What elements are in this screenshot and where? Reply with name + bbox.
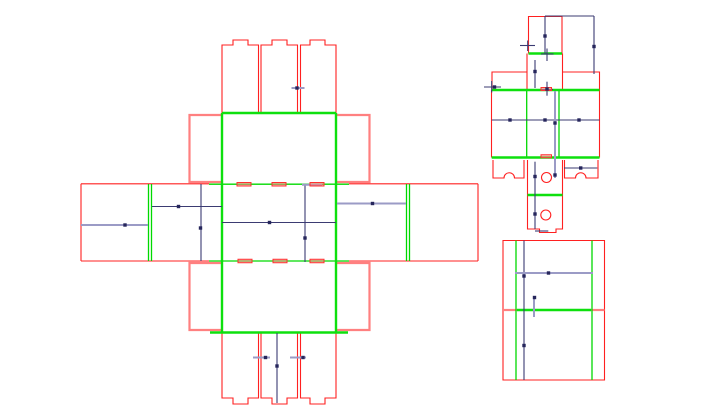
- small-cross-dieline-dimension-marker: [533, 212, 536, 215]
- small-cross-dieline-dimension-marker: [493, 85, 496, 88]
- small-cross-dieline-dimension-marker: [543, 34, 546, 37]
- small-cross-dieline-dimension-marker: [553, 121, 556, 124]
- main-cross-dieline-cutT-path[interactable]: [336, 263, 370, 330]
- main-cross-dieline-cutT-path[interactable]: [190, 115, 223, 182]
- main-cross-dieline-cut-path[interactable]: [301, 333, 337, 404]
- main-cross-dieline-cutT-path[interactable]: [190, 263, 223, 330]
- cad-svg: [0, 0, 720, 416]
- bottom-panel-dieline-dimension-marker: [522, 344, 525, 347]
- main-cross-dieline-cutT-path[interactable]: [336, 115, 370, 182]
- main-cross-dieline-dimension-marker: [268, 221, 271, 224]
- main-cross-dieline-dimension-marker: [275, 364, 278, 367]
- main-cross-dieline-dimension-marker: [295, 86, 298, 89]
- main-cross-dieline-slot[interactable]: [310, 259, 324, 263]
- main-cross-dieline-dimension-marker: [264, 356, 267, 359]
- bottom-panel-dieline-dimension-marker: [533, 296, 536, 299]
- main-cross-dieline-dimension-marker: [371, 202, 374, 205]
- bottom-panel-dieline[interactable]: [503, 241, 605, 381]
- small-cross-dieline-dimension-marker: [533, 70, 536, 73]
- small-cross-dieline-dimension-marker: [533, 175, 536, 178]
- cad-drawing-canvas[interactable]: [0, 0, 720, 416]
- main-cross-dieline-dimension-marker: [301, 356, 304, 359]
- bottom-panel-dieline-dimension-marker: [547, 271, 550, 274]
- main-cross-dieline-cut-path[interactable]: [261, 40, 298, 113]
- small-cross-dieline[interactable]: [484, 16, 600, 233]
- main-cross-dieline-dimension-marker: [303, 236, 306, 239]
- main-cross-dieline-dimension-marker: [177, 205, 180, 208]
- small-cross-dieline-slot[interactable]: [541, 155, 552, 158]
- small-cross-dieline-cut-path[interactable]: [528, 195, 563, 233]
- small-cross-dieline-cut-path[interactable]: [563, 72, 600, 90]
- small-cross-dieline-dimension-marker: [508, 118, 511, 121]
- main-cross-dieline[interactable]: [81, 40, 478, 404]
- main-cross-dieline-cut-path[interactable]: [261, 333, 298, 404]
- main-cross-dieline-cut-path[interactable]: [222, 333, 259, 404]
- small-cross-dieline-cut-path[interactable]: [493, 160, 524, 178]
- main-cross-dieline-cut-path[interactable]: [301, 40, 337, 113]
- bottom-panel-dieline-dimension-marker: [522, 274, 525, 277]
- small-cross-dieline-hole[interactable]: [541, 210, 551, 220]
- small-cross-dieline-dimension-marker: [543, 118, 546, 121]
- small-cross-dieline-dimension-marker: [545, 87, 548, 90]
- main-cross-dieline-slot[interactable]: [272, 183, 286, 187]
- small-cross-dieline-dimension-marker: [592, 45, 595, 48]
- main-cross-dieline-slot[interactable]: [273, 259, 287, 263]
- main-cross-dieline-slot[interactable]: [237, 183, 251, 187]
- main-cross-dieline-dimension-marker: [123, 223, 126, 226]
- main-cross-dieline-slot[interactable]: [238, 259, 252, 263]
- small-cross-dieline-dimension-marker: [577, 118, 580, 121]
- main-cross-dieline-cut-path[interactable]: [222, 40, 259, 113]
- main-cross-dieline-slot[interactable]: [310, 183, 324, 187]
- small-cross-dieline-dimension-marker: [553, 173, 556, 176]
- small-cross-dieline-dimension-marker: [579, 166, 582, 169]
- main-cross-dieline-dimension-marker: [199, 226, 202, 229]
- small-cross-dieline-hole[interactable]: [542, 173, 552, 183]
